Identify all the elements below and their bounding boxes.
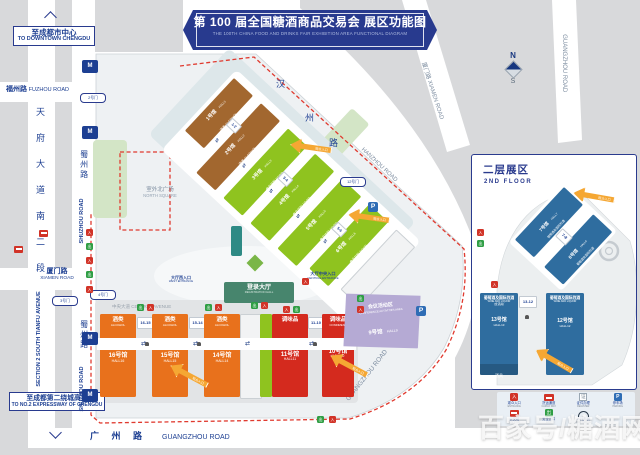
exhibition-map: 第 100 届全国糖酒商品交易会 展区功能图 THE 100TH CHINA F… xyxy=(0,0,640,455)
person-icon xyxy=(145,342,149,346)
entrance-icon: 入 xyxy=(357,306,364,313)
entrance-icon: 入 xyxy=(215,304,222,311)
person-icon xyxy=(313,342,317,346)
hall-14: 酒类ALCOHOL 14号馆HALL14 xyxy=(204,314,240,397)
green-strip-hall xyxy=(260,314,272,397)
exit-icon: 出 xyxy=(293,306,300,313)
person-icon xyxy=(525,315,529,319)
parking-icon: P xyxy=(368,202,378,212)
exit-icon: 出 xyxy=(357,295,364,302)
parking-icon: P xyxy=(416,306,426,316)
gate-2: 2号门 xyxy=(80,93,106,103)
registration-hall: 登录大厅 REGISTRATION HALL xyxy=(224,282,294,303)
entrance-icon: 入 xyxy=(283,306,290,313)
sign-to-downtown: 至成都市中心 TO DOWNTOWN CHENGDU xyxy=(13,26,95,46)
person-icon xyxy=(197,342,201,346)
road-guangzhou-bottom-en: GUANGZHOU ROAD xyxy=(162,434,230,442)
road-fuzhou: 福州路 FUZHOU ROAD xyxy=(6,86,69,94)
hall-13: 葡萄酒及国际烈酒 WINE AND LIQUOR (含酒具) 13号馆HALL1… xyxy=(480,293,518,375)
cargo-icon xyxy=(544,394,554,401)
road-guangzhou-topright: GUANGZHOU ROAD xyxy=(561,15,567,111)
compass: N S xyxy=(498,52,528,85)
entrance-icon: 入 xyxy=(147,304,154,311)
west-entrance-label: 大厅西入口 WEST ENTRANCE xyxy=(160,276,202,283)
road-hanzhou-char-0: 汉 xyxy=(276,80,285,90)
sign-expressway-en: TO NO.2 EXPRESSWAY OF CHENGDU xyxy=(10,402,104,408)
road-xiamen: 厦门路 XIAMEN ROAD xyxy=(28,268,86,281)
banner-title-zh: 第 100 届全国糖酒商品交易会 展区功能图 xyxy=(183,16,437,29)
exit-icon: 出 xyxy=(317,416,324,423)
entrance-icon: 入 xyxy=(86,229,93,236)
legend-parking: P 停车场PARKING xyxy=(601,393,636,409)
exit-icon: 出 xyxy=(251,302,258,309)
second-floor-title-en: 2ND FLOOR xyxy=(484,179,532,185)
gate-3: 3号门 xyxy=(52,296,78,306)
hall-11: 调味品 11号馆HALL11 xyxy=(272,314,308,397)
entrance-icon: 入 xyxy=(86,257,93,264)
hall-16: 酒类ALCOHOL 16号馆HALL16 xyxy=(100,314,136,397)
bus-stop-icon xyxy=(14,246,23,253)
register-icon: 证 xyxy=(579,393,587,401)
entrance-icon: 入 xyxy=(491,281,498,288)
metro-station-icon: M xyxy=(82,332,98,345)
hall-12: 葡萄酒及国际烈酒 WINE AND LIQUOR 12号馆HALL12 xyxy=(546,293,584,375)
road-tianfu-char-5: 二 xyxy=(36,238,45,248)
second-floor-title-zh: 二层展区 xyxy=(483,165,529,176)
entrance-icon: 入 xyxy=(329,416,336,423)
road-tianfu-char-1: 府 xyxy=(36,134,45,144)
exit-icon: 出 xyxy=(86,243,93,250)
entrance-icon: 入 xyxy=(510,393,518,401)
bus-stop-icon xyxy=(39,230,48,237)
road-tianfu-char-0: 天 xyxy=(36,108,45,118)
hall-12-13-footprint xyxy=(240,314,262,399)
hall-15: 酒类ALCOHOL 15号馆HALL15 xyxy=(152,314,188,397)
sign-downtown-en: TO DOWNTOWN CHENGDU xyxy=(14,37,94,43)
road-hanzhou-char-1: 州 xyxy=(305,114,314,124)
lower-cross-lane: ⇄ ⇄ ⇄ ⇄ xyxy=(97,338,356,350)
second-floor-panel: 二层展区 2ND FLOOR 7号馆 HALL7 葡萄酒及国际烈酒 8号馆 HA… xyxy=(471,154,637,390)
exit-icon: 出 xyxy=(86,271,93,278)
connector-label-13-12: 13-12 xyxy=(519,296,537,308)
road-hanzhou-char-2: 路 xyxy=(329,139,338,149)
map-watermark: 百家号/糖酒网 xyxy=(478,414,640,442)
banner-title-en: THE 100TH CHINA FOOD AND DRINKS FAIR EXH… xyxy=(183,32,437,37)
service-center-badge xyxy=(231,226,242,256)
metro-station-icon: M xyxy=(82,60,98,73)
metro-station-icon: M xyxy=(82,126,98,139)
road-tianfu-char-3: 道 xyxy=(36,186,45,196)
lane-arrow-icon: ⇄ xyxy=(245,340,250,347)
north-square-label: 室外北广场 NORTH SQUARE xyxy=(134,188,186,198)
metro-station-icon: M xyxy=(82,389,98,402)
title-banner: 第 100 届全国糖酒商品交易会 展区功能图 THE 100TH CHINA F… xyxy=(183,10,437,50)
exit-icon: 出 xyxy=(137,304,144,311)
legend-entrance: 入 观众入口ENTRANCE xyxy=(497,393,532,409)
exit-icon: 出 xyxy=(205,304,212,311)
entrance-icon: 入 xyxy=(302,278,309,285)
road-tianfu-char-4: 南 xyxy=(36,212,45,222)
entrance-icon: 入 xyxy=(86,286,93,293)
entrance-icon: 入 xyxy=(477,229,484,236)
entrance-icon: 入 xyxy=(261,302,268,309)
road-shuzhou-zh-upper: 蜀州路 xyxy=(79,150,88,180)
road-tianfu-en: SECTION 2 SOUTH TIANFU AVENUE xyxy=(37,282,43,396)
legend-cargo: 货运通道CARGO WAY xyxy=(532,393,567,409)
exit-icon: 出 xyxy=(477,240,484,247)
hall-9: 会议活动区 CONFERENCE ACTIVITIES AREA 9号馆 HAL… xyxy=(338,286,426,356)
legend-register: 证 证件办理REGISTER xyxy=(566,393,601,409)
road-guangzhou-bottom-zh: 广 州 路 xyxy=(90,432,147,442)
parking-icon: P xyxy=(614,393,622,401)
gate-12: 12号门 xyxy=(340,177,366,187)
hall-13-ware-band: 酒具 xyxy=(480,364,518,375)
gate-4: 4号门 xyxy=(90,290,116,300)
compass-needle-icon xyxy=(504,60,522,78)
road-tianfu-char-2: 大 xyxy=(36,160,45,170)
